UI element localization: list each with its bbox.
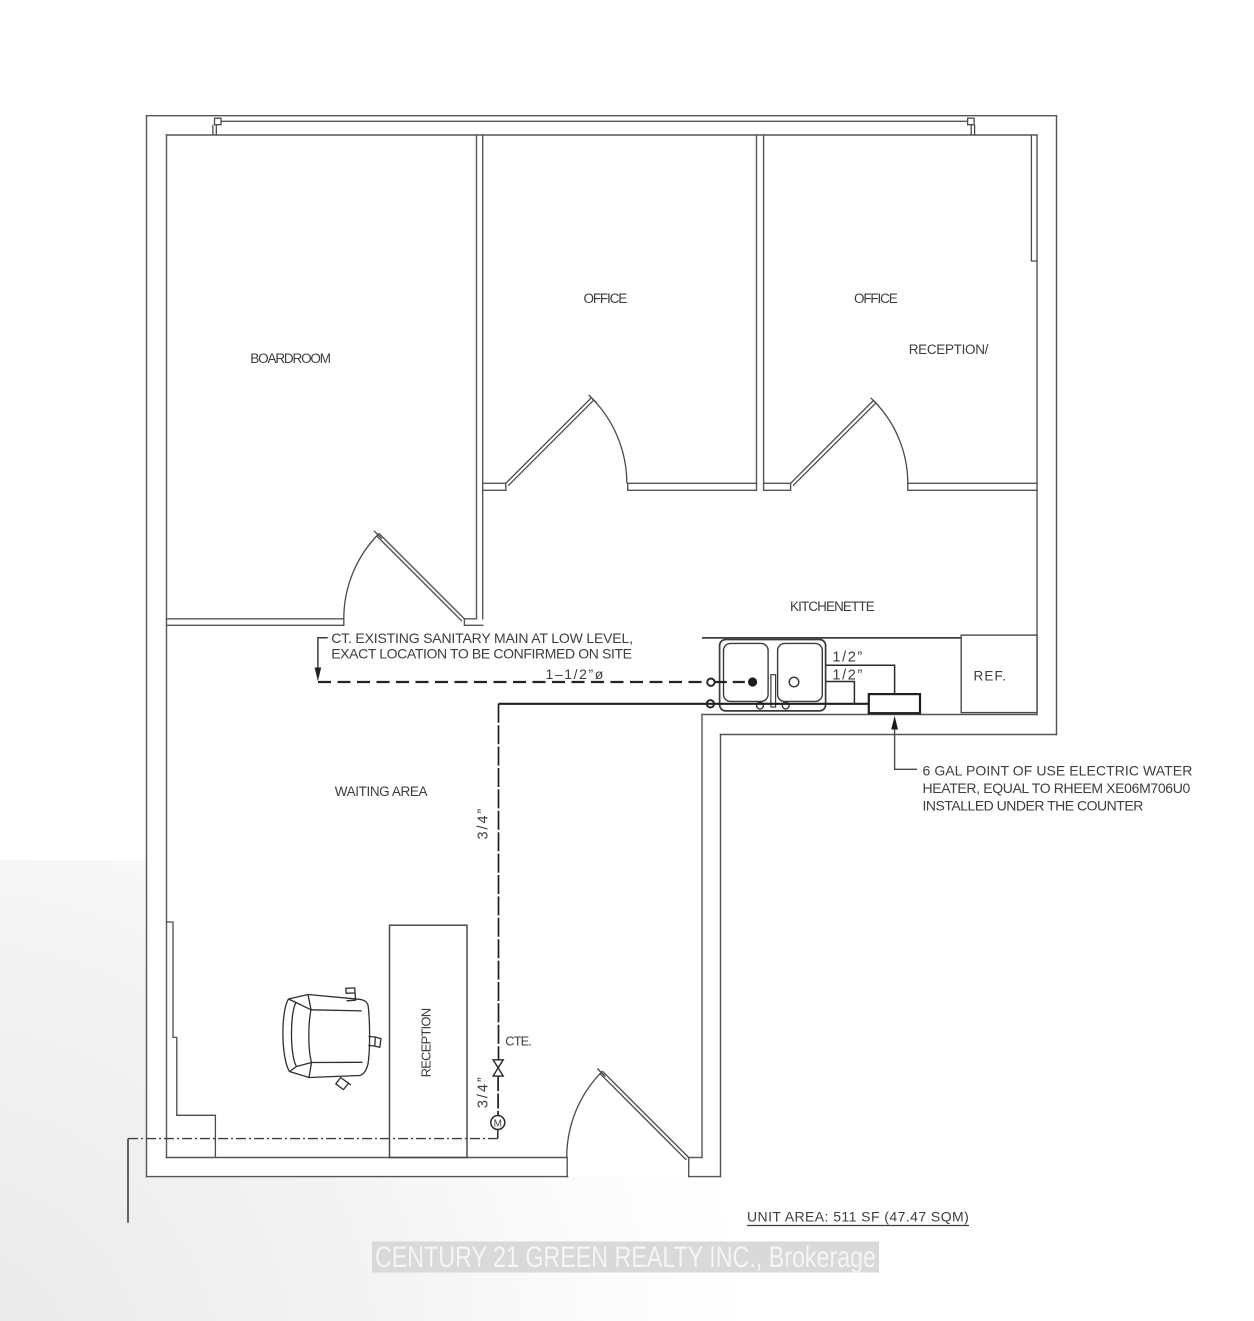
svg-text:INSTALLED UNDER THE COUNTER: INSTALLED UNDER THE COUNTER	[923, 797, 1144, 813]
svg-text:RECEPTION/: RECEPTION/	[909, 342, 989, 357]
svg-text:CTE.: CTE.	[505, 1033, 532, 1048]
svg-text:3/4”: 3/4”	[475, 809, 491, 840]
svg-text:1–1/2”ø: 1–1/2”ø	[546, 666, 604, 682]
svg-text:BOARDROOM: BOARDROOM	[250, 351, 331, 366]
svg-text:1/2”: 1/2”	[832, 668, 862, 684]
svg-text:1/2”: 1/2”	[832, 649, 862, 665]
svg-text:RECEPTION: RECEPTION	[419, 1007, 434, 1077]
svg-text:KITCHENETTE: KITCHENETTE	[790, 599, 875, 614]
svg-text:OFFICE: OFFICE	[854, 291, 898, 306]
svg-text:HEATER, EQUAL TO RHEEM XE06M70: HEATER, EQUAL TO RHEEM XE06M706U0	[923, 780, 1191, 796]
svg-text:OFFICE: OFFICE	[584, 291, 628, 306]
svg-text:EXACT LOCATION TO BE CONFIRMED: EXACT LOCATION TO BE CONFIRMED ON SITE	[331, 645, 632, 661]
svg-text:3/4”: 3/4”	[476, 1077, 492, 1108]
svg-text:CENTURY 21 GREEN REALTY INC.,: CENTURY 21 GREEN REALTY INC., Brokerage	[375, 1241, 876, 1274]
svg-text:CT. EXISTING SANITARY MAIN AT: CT. EXISTING SANITARY MAIN AT LOW LEVEL,	[331, 630, 633, 646]
svg-text:6 GAL POINT OF USE ELECTRIC WA: 6 GAL POINT OF USE ELECTRIC WATER	[923, 762, 1193, 778]
svg-text:UNIT AREA: 511 SF (47.47 SQM): UNIT AREA: 511 SF (47.47 SQM)	[747, 1209, 969, 1225]
svg-text:WAITING AREA: WAITING AREA	[335, 784, 428, 799]
svg-text:M: M	[494, 1118, 502, 1129]
svg-text:REF.: REF.	[974, 669, 1007, 684]
